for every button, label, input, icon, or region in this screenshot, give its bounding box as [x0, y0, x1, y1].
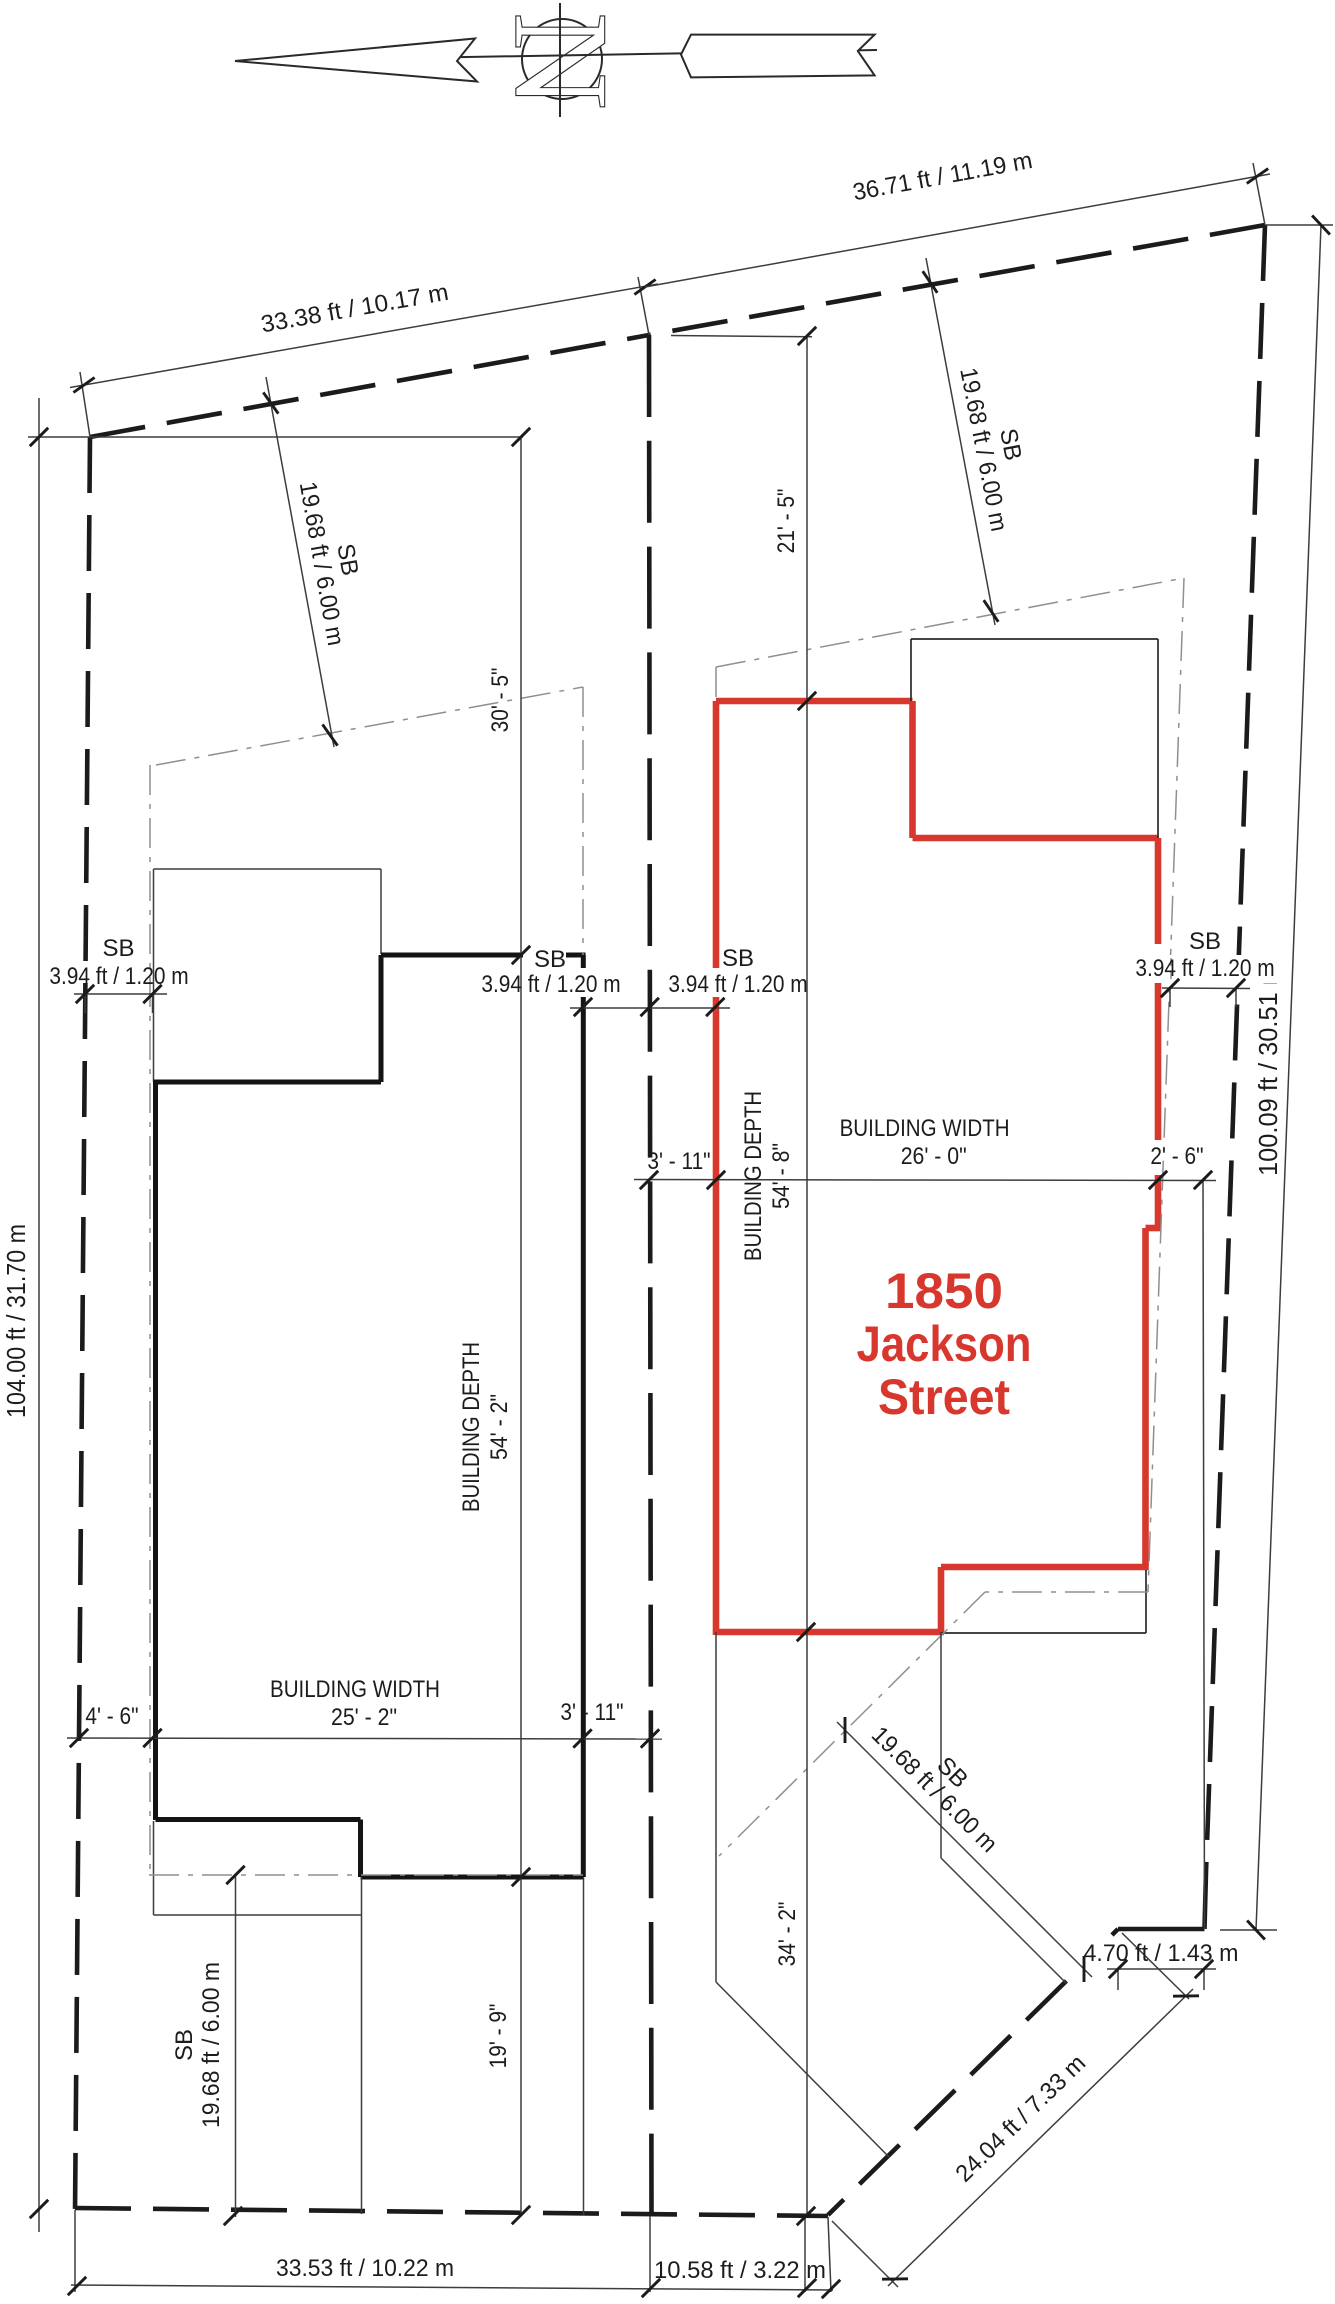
svg-text:30' - 5": 30' - 5" [487, 668, 514, 733]
svg-text:34' - 2": 34' - 2" [774, 1902, 801, 1967]
svg-text:BUILDING DEPTH: BUILDING DEPTH [740, 1091, 767, 1261]
svg-text:25' - 2": 25' - 2" [331, 1704, 397, 1731]
svg-text:3' - 11": 3' - 11" [647, 1148, 710, 1175]
svg-text:BUILDING DEPTH: BUILDING DEPTH [458, 1342, 485, 1512]
svg-text:3.94 ft / 1.20 m: 3.94 ft / 1.20 m [481, 971, 620, 998]
svg-text:Street: Street [878, 1369, 1010, 1425]
svg-text:SB: SB [102, 935, 134, 962]
svg-text:54' - 8": 54' - 8" [768, 1143, 795, 1209]
svg-text:SB: SB [722, 945, 754, 972]
svg-text:1850: 1850 [885, 1263, 1003, 1319]
svg-text:3' - 11": 3' - 11" [560, 1699, 623, 1726]
svg-text:SB: SB [534, 946, 566, 973]
svg-text:4' - 6": 4' - 6" [85, 1703, 138, 1730]
svg-text:BUILDING WIDTH: BUILDING WIDTH [840, 1115, 1010, 1142]
svg-text:33.53 ft / 10.22 m: 33.53 ft / 10.22 m [276, 2255, 454, 2282]
svg-text:2' - 6": 2' - 6" [1150, 1143, 1203, 1170]
svg-text:19' - 9": 19' - 9" [485, 2004, 512, 2069]
svg-text:3.94 ft / 1.20 m: 3.94 ft / 1.20 m [668, 971, 807, 998]
svg-text:100.09 ft / 30.51 m: 100.09 ft / 30.51 m [1253, 964, 1283, 1176]
svg-text:3.94 ft / 1.20 m: 3.94 ft / 1.20 m [49, 963, 188, 990]
svg-text:N: N [487, 13, 635, 110]
svg-text:4.70 ft / 1.43 m: 4.70 ft / 1.43 m [1084, 1940, 1239, 1967]
svg-text:104.00 ft / 31.70 m: 104.00 ft / 31.70 m [1, 1224, 31, 1418]
svg-text:Jackson: Jackson [857, 1316, 1032, 1372]
svg-text:26' - 0": 26' - 0" [901, 1143, 967, 1170]
svg-text:10.58 ft / 3.22 m: 10.58 ft / 3.22 m [654, 2257, 826, 2284]
svg-text:3.94 ft / 1.20 m: 3.94 ft / 1.20 m [1135, 955, 1274, 982]
svg-text:BUILDING WIDTH: BUILDING WIDTH [270, 1676, 440, 1703]
svg-text:21' - 5": 21' - 5" [773, 489, 800, 554]
svg-text:SB: SB [171, 2029, 198, 2061]
svg-text:SB: SB [1189, 928, 1221, 955]
svg-text:54' - 2": 54' - 2" [486, 1394, 513, 1460]
svg-text:19.68 ft / 6.00 m: 19.68 ft / 6.00 m [198, 1962, 225, 2128]
